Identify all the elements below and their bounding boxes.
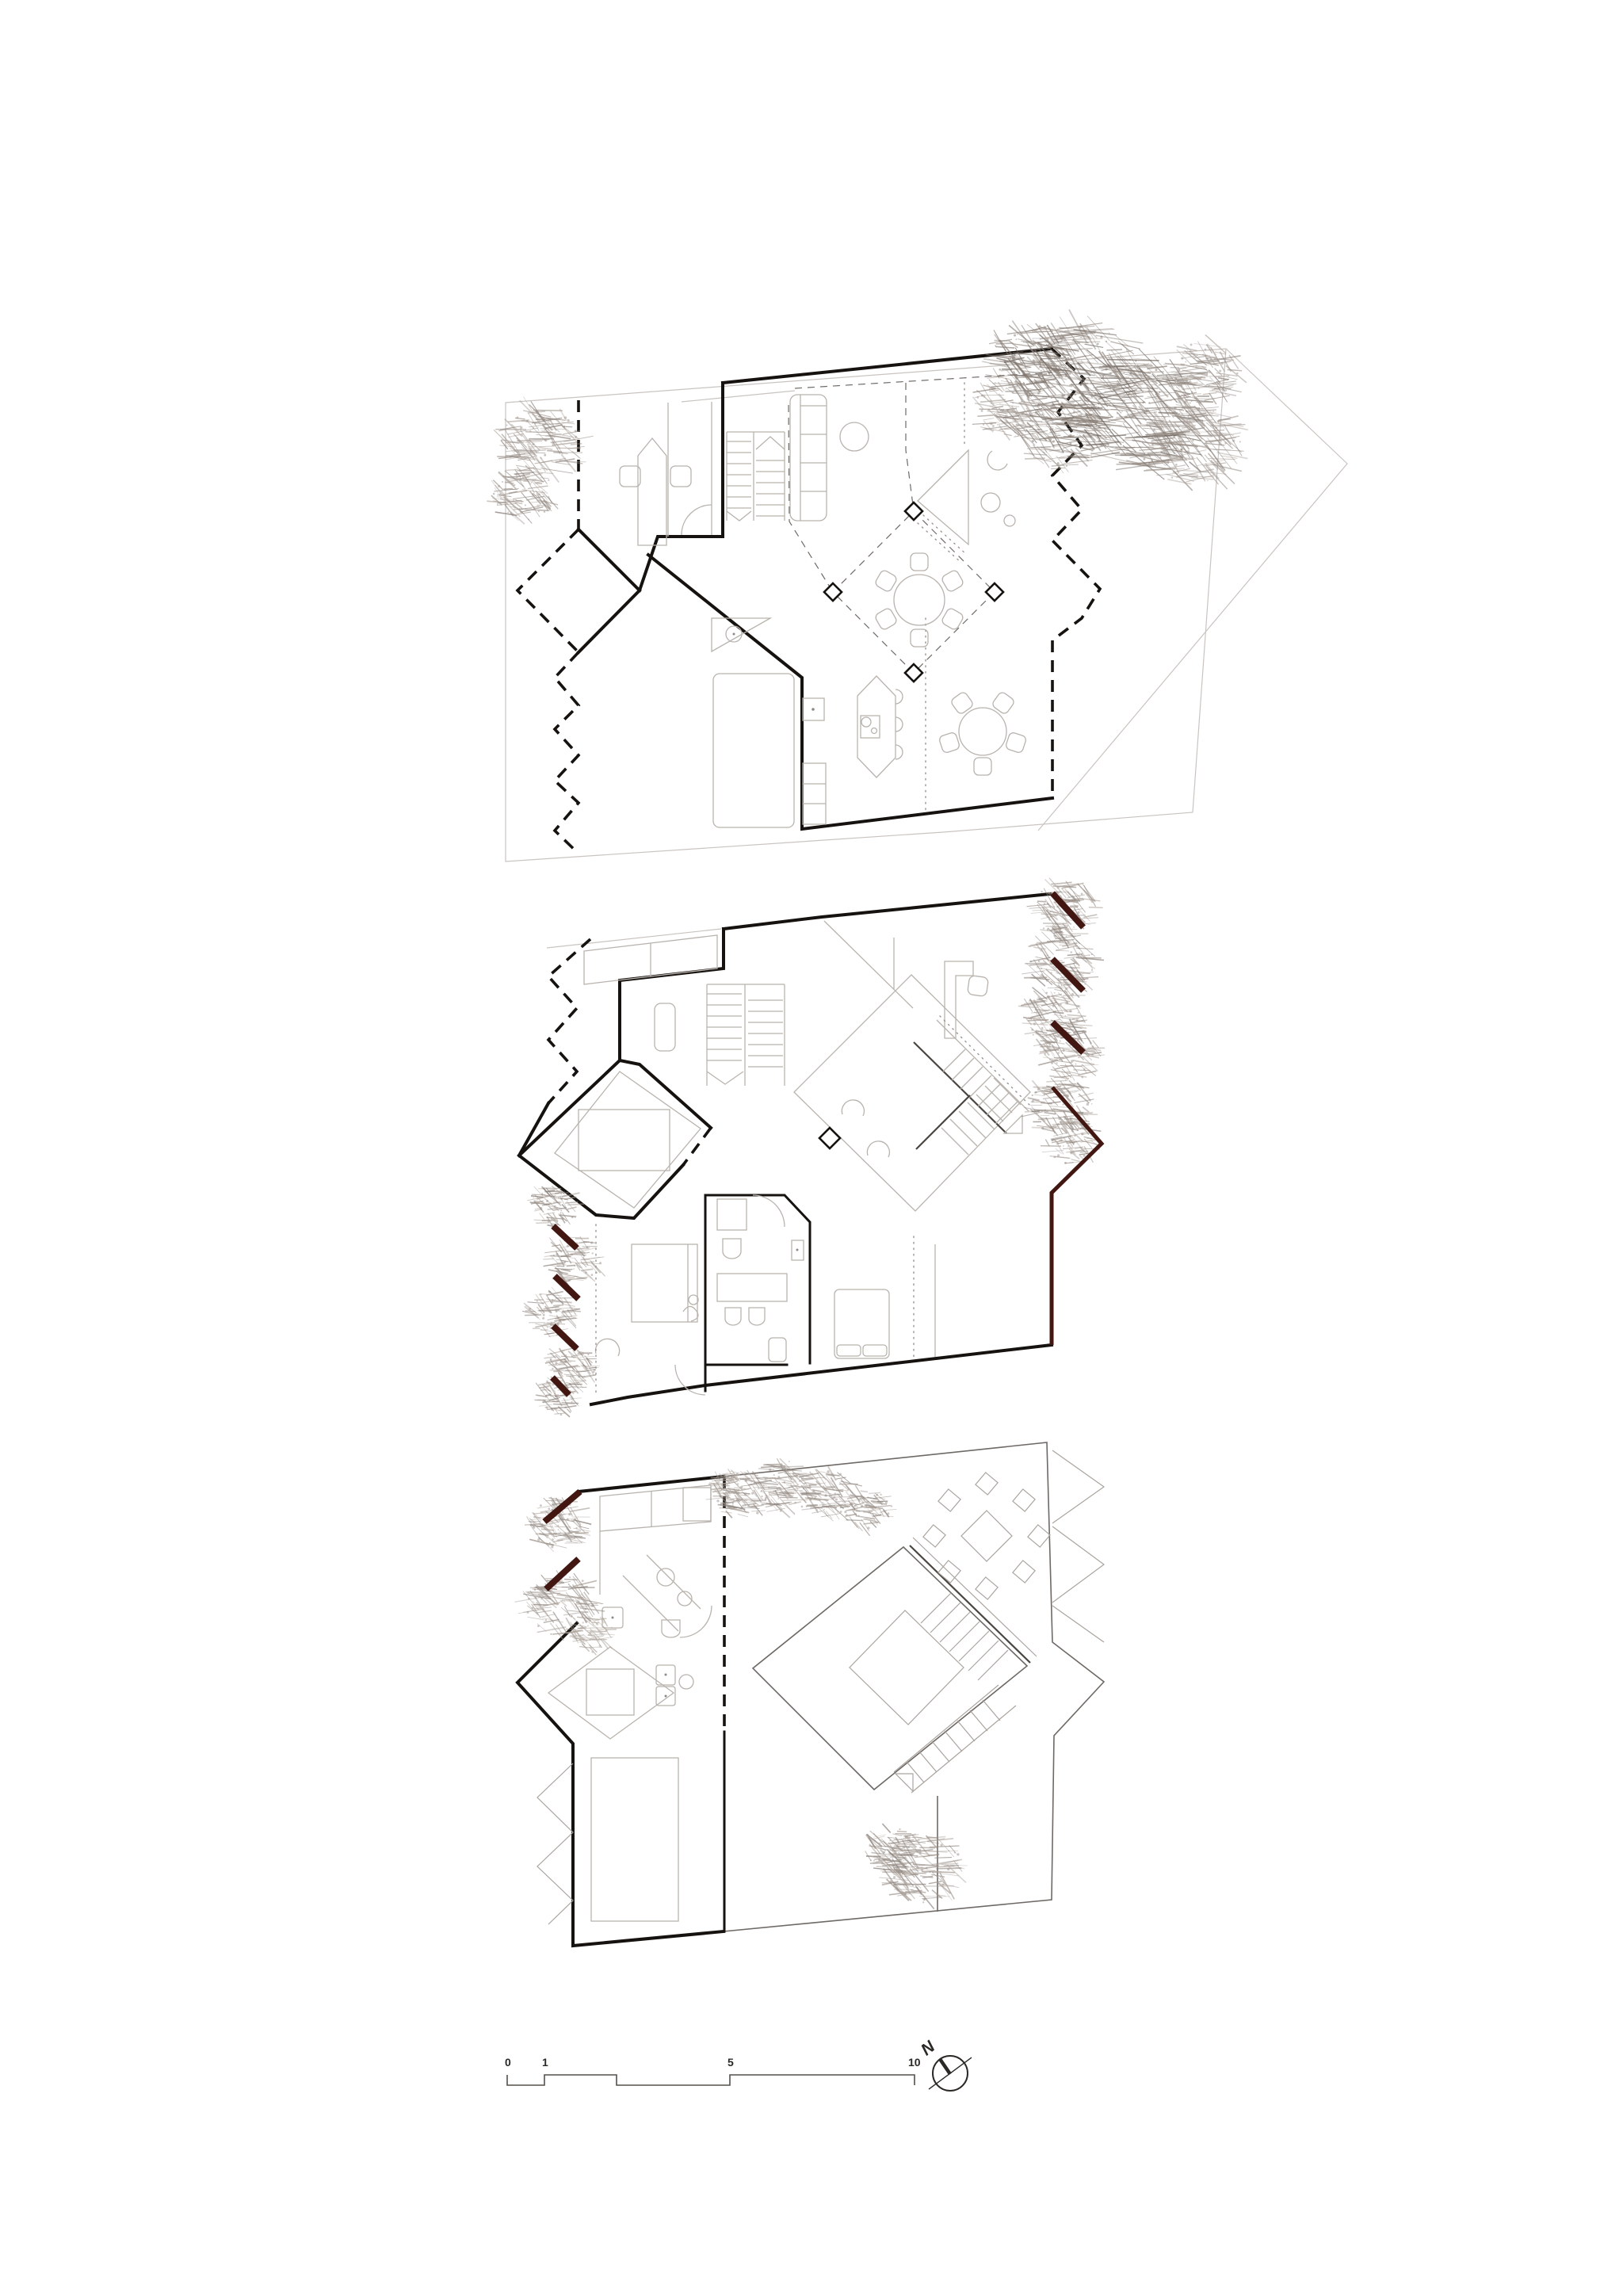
sawtooth-edge-left [555, 652, 579, 854]
vanity-counter [717, 1274, 787, 1301]
side-table [1004, 515, 1015, 526]
side-table [655, 1003, 675, 1051]
chair [620, 466, 640, 487]
roof-plan [517, 1442, 1104, 1946]
tree [487, 467, 558, 524]
bar-stools [896, 690, 903, 759]
exterior-walls [519, 894, 1052, 1404]
door-swing [680, 1606, 712, 1637]
scale-label: 5 [727, 2056, 734, 2069]
outdoor-chair [976, 1473, 998, 1495]
chair [670, 466, 691, 487]
north-arrow: N [918, 2037, 972, 2091]
grand-piano [918, 450, 968, 544]
sink [749, 1308, 765, 1325]
accent-walls-layer [544, 893, 1102, 1589]
person-figure [689, 1295, 698, 1305]
bedroom-2 [834, 1236, 935, 1358]
living-area [790, 395, 1015, 544]
chair [974, 758, 991, 775]
door-swing [753, 1195, 785, 1227]
kitchen-island [857, 676, 896, 777]
staircase-upper [707, 984, 785, 1086]
drawing-sheet: 01510 N [0, 0, 1623, 2296]
sink [725, 1308, 741, 1325]
sawtooth-left [537, 1763, 573, 1924]
pergola-teeth [1052, 1450, 1104, 1642]
compass-needle [940, 2059, 950, 2074]
outdoor-chair [1013, 1489, 1035, 1511]
outdoor-chair [938, 1561, 960, 1583]
chair [911, 629, 928, 647]
toilet [662, 1620, 680, 1637]
bed [834, 1289, 889, 1358]
shower [717, 1199, 747, 1230]
outdoor-chair [1028, 1525, 1050, 1547]
console-desk [638, 438, 666, 545]
central-void-and-stair [794, 975, 1030, 1211]
dining-table [894, 575, 945, 625]
tree [1132, 391, 1247, 491]
upper-courtyard-void [555, 1072, 701, 1208]
chair [874, 569, 898, 593]
armchair [987, 451, 1007, 470]
patio-dashed-diamond [824, 502, 1003, 682]
scale-bar: 01510 [505, 2056, 921, 2085]
chair [874, 607, 898, 631]
kitchen-area [803, 676, 1027, 824]
door-swing [682, 505, 712, 535]
tree [1022, 925, 1104, 998]
tree [544, 1343, 600, 1392]
chair [1005, 732, 1027, 754]
outdoor-chair [938, 1489, 960, 1511]
chair [938, 732, 960, 754]
counter [803, 763, 826, 824]
chair [941, 607, 964, 631]
scale-label: 10 [908, 2056, 921, 2069]
chair [911, 553, 928, 571]
pillow [837, 1345, 861, 1356]
exterior-walls [579, 349, 1052, 829]
accent-wall [546, 1559, 579, 1589]
pouf [596, 1339, 620, 1356]
outdoor-chair [1013, 1561, 1035, 1583]
desk [945, 961, 973, 1038]
entry-room [620, 402, 712, 545]
chair [941, 569, 964, 593]
accent-wall [1052, 1087, 1102, 1345]
tree [1163, 334, 1247, 406]
outdoor-table [961, 1511, 1012, 1561]
scale-label: 1 [542, 2056, 548, 2069]
bedroom-1 [596, 1224, 698, 1393]
dining-area [874, 553, 964, 647]
outdoor-chair [976, 1577, 998, 1599]
pouf [981, 493, 1000, 512]
armchair [842, 1100, 864, 1116]
lounge-area [584, 935, 717, 1051]
roof-terrace-dining [923, 1473, 1050, 1599]
north-label: N [918, 2037, 939, 2059]
tree [1041, 1116, 1102, 1164]
sofa [790, 395, 827, 521]
column-marker [819, 1128, 840, 1148]
breakfast-table [959, 708, 1006, 755]
desk-chair [967, 975, 988, 996]
sink [657, 1568, 674, 1586]
roof-outline [517, 1442, 1104, 1946]
staircase-ground [727, 432, 785, 521]
toilet [769, 1338, 786, 1362]
scale-label: 0 [505, 2056, 511, 2069]
toilet [723, 1239, 741, 1259]
tree [525, 1497, 591, 1552]
coffee-table [840, 422, 869, 451]
architectural-drawing: 01510 N [0, 0, 1623, 2296]
first-floor-plan [519, 894, 1052, 1404]
tree [527, 1186, 584, 1229]
outdoor-chair [923, 1525, 945, 1547]
armchair [867, 1141, 889, 1157]
music-room [712, 618, 794, 827]
scale-bar-line [507, 2075, 915, 2085]
pillow [863, 1345, 887, 1356]
